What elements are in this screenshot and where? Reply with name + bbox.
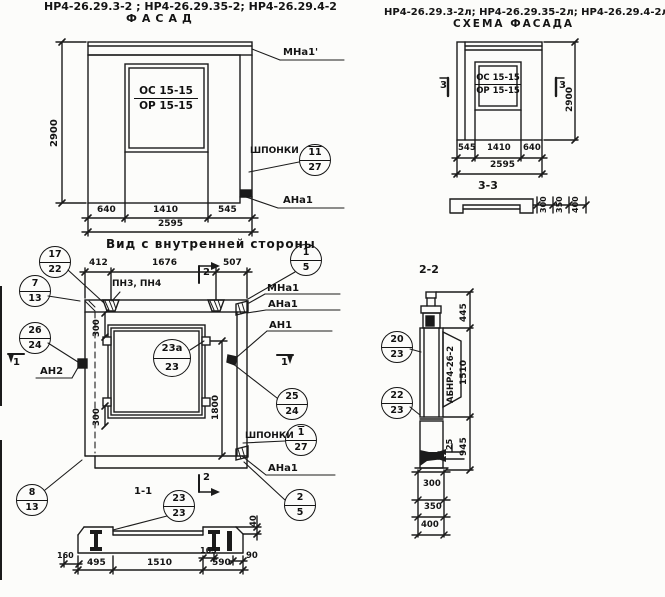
marker-bottom: 27 <box>286 441 316 456</box>
inner-label-an2: АН2 <box>40 366 63 377</box>
scheme-window-mark: ОС 15-15 ОР 15-15 <box>475 73 521 96</box>
marker-bottom: 23 <box>154 359 190 377</box>
inner-label-an1: АН1 <box>269 320 292 331</box>
sec33-dim-300: 300 <box>540 196 549 213</box>
facade-dim-545: 545 <box>218 206 237 216</box>
window-mark-bottom: ОР 15-15 <box>475 85 521 96</box>
sec22-dim-25: 25 <box>446 439 455 450</box>
marker-top: 8 <box>17 485 47 501</box>
sec22-dim-350: 350 <box>424 503 442 512</box>
scheme-drawing <box>440 39 578 177</box>
title-section-3-3: 3-3 <box>478 180 498 192</box>
facade-label-shponki: ШПОНКИ <box>250 147 299 157</box>
inner-dim-507: 507 <box>223 259 242 269</box>
facade-dim-640: 640 <box>97 206 116 216</box>
sec22-dim-300: 300 <box>423 480 441 489</box>
marker-25-24: 25 24 <box>276 388 308 420</box>
marker-20-23: 20 23 <box>381 331 413 363</box>
title-facade: ФАСАД <box>126 13 197 25</box>
window-mark-top: ОС 15-15 <box>134 85 198 99</box>
marker-shponki-facade: 11 27 <box>299 144 331 176</box>
window-mark-top: ОС 15-15 <box>475 73 521 85</box>
marker-shponki-inner: 1 27 <box>285 424 317 456</box>
inner-marker-sec1-left: 1 <box>13 357 20 368</box>
marker-top: 17 <box>40 247 70 263</box>
marker-8-13: 8 13 <box>16 484 48 516</box>
marker-23-23: 23 23 <box>163 490 195 522</box>
marker-17-22: 17 22 <box>39 246 71 278</box>
scan-artifact <box>0 286 2 406</box>
marker-top: 2 <box>285 490 315 506</box>
sec33-dim-400: 400 <box>572 196 581 213</box>
marker-bottom: 24 <box>277 405 307 420</box>
facade-window-mark: ОС 15-15 ОР 15-15 <box>134 85 198 112</box>
sec11-dim-160: 160 <box>57 552 74 561</box>
inner-dim-412: 412 <box>89 259 108 269</box>
inner-dim-1676: 1676 <box>152 259 177 269</box>
scheme-dim-1410: 1410 <box>487 144 511 153</box>
marker-top: 20 <box>382 332 412 348</box>
sec11-dim-495: 495 <box>87 559 106 569</box>
marker-top: 22 <box>382 388 412 404</box>
marker-23a-23: 23а 23 <box>153 339 191 377</box>
sec33-dim-350: 350 <box>556 196 565 213</box>
marker-top: 11 <box>300 145 330 161</box>
inner-label-ana1-top: АНа1 <box>268 299 298 310</box>
inner-label-pn: ПН3, ПН4 <box>112 280 161 290</box>
sec22-dim-445: 445 <box>460 303 470 322</box>
section-3-3-drawing <box>450 197 589 213</box>
sec22-dim-400: 400 <box>421 521 439 530</box>
marker-26-24: 26 24 <box>19 322 51 354</box>
sec22-dim-1510: 1510 <box>460 360 470 385</box>
title-inner-view: Вид с внутренней стороны <box>106 238 316 251</box>
facade-label-mna1: МНа1' <box>283 47 318 58</box>
facade-dim-1410: 1410 <box>153 206 178 216</box>
marker-top: 25 <box>277 389 307 405</box>
scan-artifact <box>0 440 2 580</box>
scheme-dim-height: 2900 <box>566 87 576 112</box>
sec11-dim-165: 165 <box>200 547 217 556</box>
marker-bottom: 5 <box>291 261 321 276</box>
facade-dim-total: 2595 <box>158 220 183 230</box>
blueprint-page: НР4-26.29.3-2 ; НР4-26.29.35-2; НР4-26.2… <box>0 0 665 597</box>
sec11-dim-90: 90 <box>246 552 258 561</box>
scheme-dim-total: 2595 <box>490 161 515 171</box>
scheme-dim-545: 545 <box>458 144 476 153</box>
marker-bottom: 5 <box>285 506 315 521</box>
marker-top: 23а <box>154 340 190 359</box>
title-section-2-2: 2-2 <box>419 264 439 276</box>
marker-22-23: 22 23 <box>381 387 413 419</box>
sec22-dim-945: 945 <box>460 437 470 456</box>
marker-bottom: 24 <box>20 339 50 354</box>
marker-2-5: 2 5 <box>284 489 316 521</box>
inner-dim-300-bottom: 300 <box>93 408 102 426</box>
marker-bottom: 13 <box>17 501 47 516</box>
sec11-dim-1510: 1510 <box>147 559 172 569</box>
marker-top: 1 <box>286 425 316 441</box>
marker-bottom: 27 <box>300 161 330 176</box>
marker-top: 26 <box>20 323 50 339</box>
marker-bottom: 22 <box>40 263 70 278</box>
inner-marker-sec2-top: 2 <box>203 267 210 278</box>
sec22-label-rot: АБНР4-26-2 <box>447 346 456 403</box>
sec11-dim-590: 590 <box>212 559 231 569</box>
inner-label-mna1: МНа1 <box>267 283 299 294</box>
marker-bottom: 23 <box>382 404 412 419</box>
title-section-1-1: 1-1 <box>134 486 152 497</box>
inner-label-ana1-bottom: АНа1 <box>268 463 298 474</box>
facade-dim-height: 2900 <box>49 119 60 147</box>
section-2-2-drawing <box>410 289 473 538</box>
marker-bottom: 23 <box>382 348 412 363</box>
title-scheme: СХЕМА ФАСАДА <box>453 19 574 31</box>
inner-dim-1800: 1800 <box>212 395 222 420</box>
scheme-dim-640: 640 <box>523 144 541 153</box>
marker-bottom: 23 <box>164 507 194 522</box>
marker-top: 1 <box>291 245 321 261</box>
inner-marker-sec2-bottom: 2 <box>203 472 210 483</box>
facade-label-ana1: АНа1 <box>283 195 313 206</box>
sec11-dim-40: 40 <box>250 515 259 527</box>
inner-dim-300-top: 300 <box>93 319 102 337</box>
scheme-marker-3-left: 3 <box>440 80 447 91</box>
title-scheme-marks: НР4-26.29.3-2л; НР4-26.29.35-2л; НР4-26.… <box>384 7 665 18</box>
inner-marker-sec1-right: 1 <box>281 357 288 368</box>
marker-top: 23 <box>164 491 194 507</box>
marker-7-13: 7 13 <box>19 275 51 307</box>
marker-1-5: 1 5 <box>290 244 322 276</box>
marker-top: 7 <box>20 276 50 292</box>
marker-bottom: 13 <box>20 292 50 307</box>
window-mark-bottom: ОР 15-15 <box>134 99 198 112</box>
